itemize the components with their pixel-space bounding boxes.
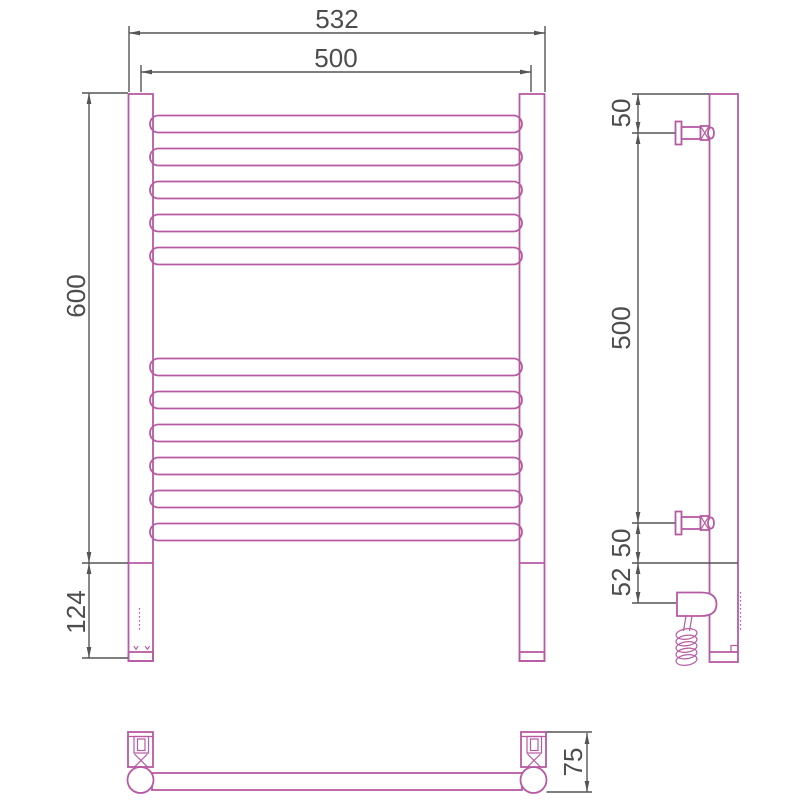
side-post: [710, 94, 739, 662]
wall-bracket-top: [676, 122, 715, 145]
dim-label-base-offset: 52: [606, 568, 636, 597]
front-right-post-foot: [520, 652, 545, 661]
arrowhead: [141, 70, 152, 75]
dim-label-overall-width: 532: [315, 4, 358, 34]
rung: [150, 116, 522, 133]
arrowhead: [636, 523, 641, 534]
rung: [150, 392, 522, 409]
dim-label-height: 600: [61, 274, 91, 317]
technical-drawing: 532 500 600 124: [0, 0, 800, 800]
front-view: [129, 94, 545, 661]
dim-label-top-bracket-offset: 50: [606, 99, 636, 128]
bottom-bracket-left: [128, 732, 153, 767]
bracket-body: [682, 127, 701, 139]
arrowhead: [520, 70, 531, 75]
arrowhead: [585, 733, 590, 744]
arrowhead: [87, 93, 92, 104]
front-left-post-foot: [129, 652, 154, 661]
arrowhead: [87, 563, 92, 574]
side-dimensions: 50 500 50 52: [606, 94, 738, 603]
dim-label-depth: 75: [558, 748, 588, 777]
front-rungs-bottom: [150, 359, 522, 541]
bottom-view: [128, 732, 547, 793]
bottom-dimensions: 75: [547, 732, 593, 792]
dim-label-lower-section: 124: [61, 590, 91, 633]
bracket-flange: [676, 122, 682, 145]
arrowhead: [636, 94, 641, 105]
arrowhead: [636, 552, 641, 563]
bracket-slot-inner: [138, 739, 146, 751]
post-section-circle: [521, 767, 547, 793]
wall-bracket-bottom: [676, 512, 715, 535]
arrowhead: [636, 512, 641, 523]
arrowhead: [129, 31, 140, 36]
dim-label-bracket-spacing: 500: [606, 306, 636, 349]
arrowhead: [636, 563, 641, 574]
rung: [150, 215, 522, 232]
rung: [150, 425, 522, 442]
bracket-nut: [708, 518, 714, 529]
arrowhead: [636, 122, 641, 133]
power-cord-coil: [675, 627, 697, 666]
bracket-slot-inner: [531, 739, 539, 751]
dim-label-lower-bracket-offset: 50: [606, 529, 636, 558]
post-section-circle: [128, 767, 154, 793]
side-view: [675, 94, 740, 667]
foot-tick-mark: [134, 646, 138, 649]
arrowhead: [87, 552, 92, 563]
front-left-post: [129, 94, 154, 661]
arrowhead: [585, 781, 590, 792]
rung: [150, 491, 522, 508]
front-right-post: [520, 94, 545, 661]
arrowhead: [534, 31, 545, 36]
rung: [150, 149, 522, 166]
front-dimensions: 532 500 600 124: [61, 4, 545, 658]
heater-housing: [677, 593, 717, 617]
foot-tick-mark: [145, 646, 149, 649]
arrowhead: [636, 592, 641, 603]
front-rungs-top: [150, 116, 522, 265]
arrowhead: [87, 647, 92, 658]
bottom-bracket-right: [521, 732, 546, 767]
rung: [150, 458, 522, 475]
rung: [150, 524, 522, 541]
bracket-body: [682, 517, 701, 529]
rung: [150, 248, 522, 265]
bracket-nut: [708, 128, 714, 139]
rung: [150, 182, 522, 199]
bottom-tube: [152, 773, 522, 790]
arrowhead: [636, 133, 641, 144]
side-post-notch: [731, 646, 738, 653]
bracket-flange: [676, 512, 682, 535]
dim-label-rail-width: 500: [314, 43, 357, 73]
rung: [150, 359, 522, 376]
